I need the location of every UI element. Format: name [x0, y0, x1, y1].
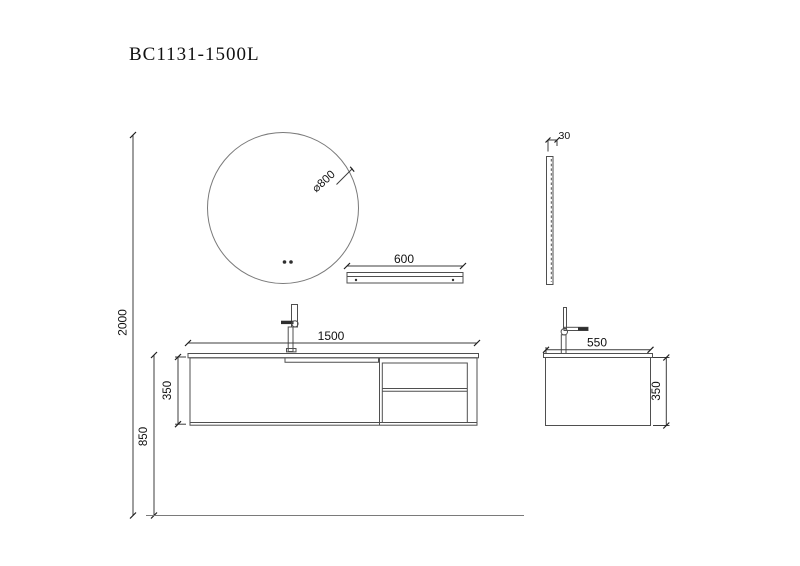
basin-outline [285, 358, 379, 362]
vanity-side-view: 550 350 [543, 308, 670, 429]
diameter-leader-line [337, 169, 353, 185]
shelf-width-label: 600 [394, 252, 414, 266]
sensor-dot [289, 260, 293, 264]
faucet-body-side [561, 335, 566, 354]
shelf-screw-dot [452, 279, 454, 281]
countertop-front [188, 354, 479, 358]
floor-clearance-label: 850 [138, 427, 150, 446]
faucet-side [561, 308, 588, 354]
vanity-side-height-label: 350 [651, 381, 663, 400]
mirror-circle [208, 133, 359, 284]
mirror-side-profile [547, 157, 554, 285]
shelf-front-view: 600 [344, 252, 466, 283]
drawer-stack-outline [382, 363, 467, 423]
faucet-body [288, 327, 293, 352]
total-height-label: 2000 [116, 309, 130, 336]
vanity-width-label: 1500 [318, 329, 345, 343]
sensor-dot [283, 260, 287, 264]
mirror-front-view: ⌀800 [208, 133, 359, 284]
faucet-handle-side [564, 308, 567, 329]
faucet-front [281, 305, 298, 352]
mirror-thickness-label: 30 [559, 130, 571, 142]
shelf-screw-dot [355, 279, 357, 281]
vanity-depth-label: 550 [587, 336, 607, 350]
mirror-side-view: 30 [546, 130, 571, 285]
shelf-body [347, 273, 463, 284]
drawing-sheet: BC1131-1500L ⌀800 600 [0, 0, 800, 566]
mirror-diameter-label: ⌀800 [310, 169, 337, 195]
vanity-height-label: 350 [162, 381, 174, 400]
faucet-spout-tip [578, 327, 588, 330]
countertop-side [544, 354, 653, 358]
vanity-front-view: 1500 350 [162, 305, 480, 428]
drawing-canvas: ⌀800 600 30 [0, 0, 800, 566]
cabinet-body-side [546, 358, 651, 426]
